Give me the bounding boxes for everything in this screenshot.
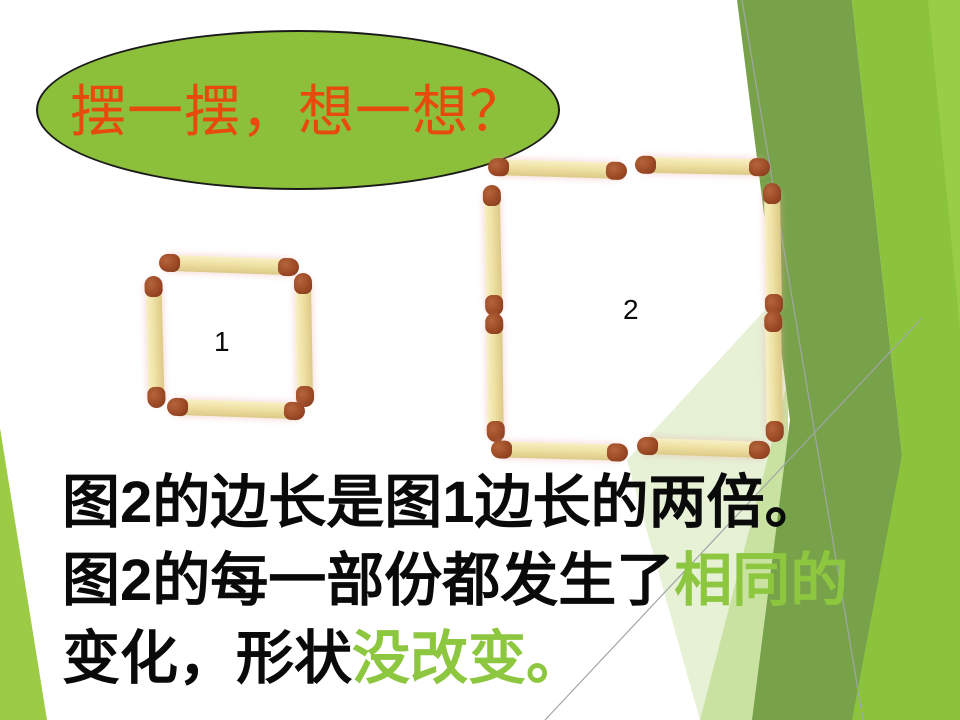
body-line-3-text: 变化，形状 — [62, 626, 352, 691]
matchstick — [495, 441, 624, 460]
matchstick — [145, 280, 164, 404]
matchstick — [486, 317, 504, 438]
body-line-2-highlight: 相同的 — [674, 548, 848, 613]
body-line-2: 图2的每一部份都发生了相同的 — [62, 542, 848, 620]
body-line-3: 变化，形状没改变。 — [62, 620, 848, 698]
body-text: 图2的边长是图1边长的两倍。 图2的每一部份都发生了相同的 变化，形状没改变。 — [62, 464, 848, 698]
body-line-3-highlight: 没改变。 — [352, 626, 584, 691]
title-banner: 摆一摆，想一想？ — [36, 30, 560, 190]
body-line-2-text: 图2的每一部份都发生了 — [62, 548, 674, 613]
slide-canvas: 摆一摆，想一想？ 1 2 图2的边长是图1边长的两倍。 图2的每一部份都发生了相… — [0, 0, 960, 720]
figure-1-label: 1 — [214, 326, 230, 358]
matchstick — [295, 277, 313, 403]
title-text: 摆一摆，想一想？ — [70, 67, 526, 154]
matchstick — [639, 157, 766, 176]
body-line-1-text: 图2的边长是图1边长的两倍。 — [62, 470, 823, 535]
matchstick — [765, 315, 783, 438]
matchstick — [484, 189, 503, 312]
decor-left-wedge — [0, 428, 47, 720]
figure-2-label: 2 — [623, 294, 639, 326]
body-line-1: 图2的边长是图1边长的两倍。 — [62, 464, 848, 542]
matchstick — [764, 187, 782, 311]
